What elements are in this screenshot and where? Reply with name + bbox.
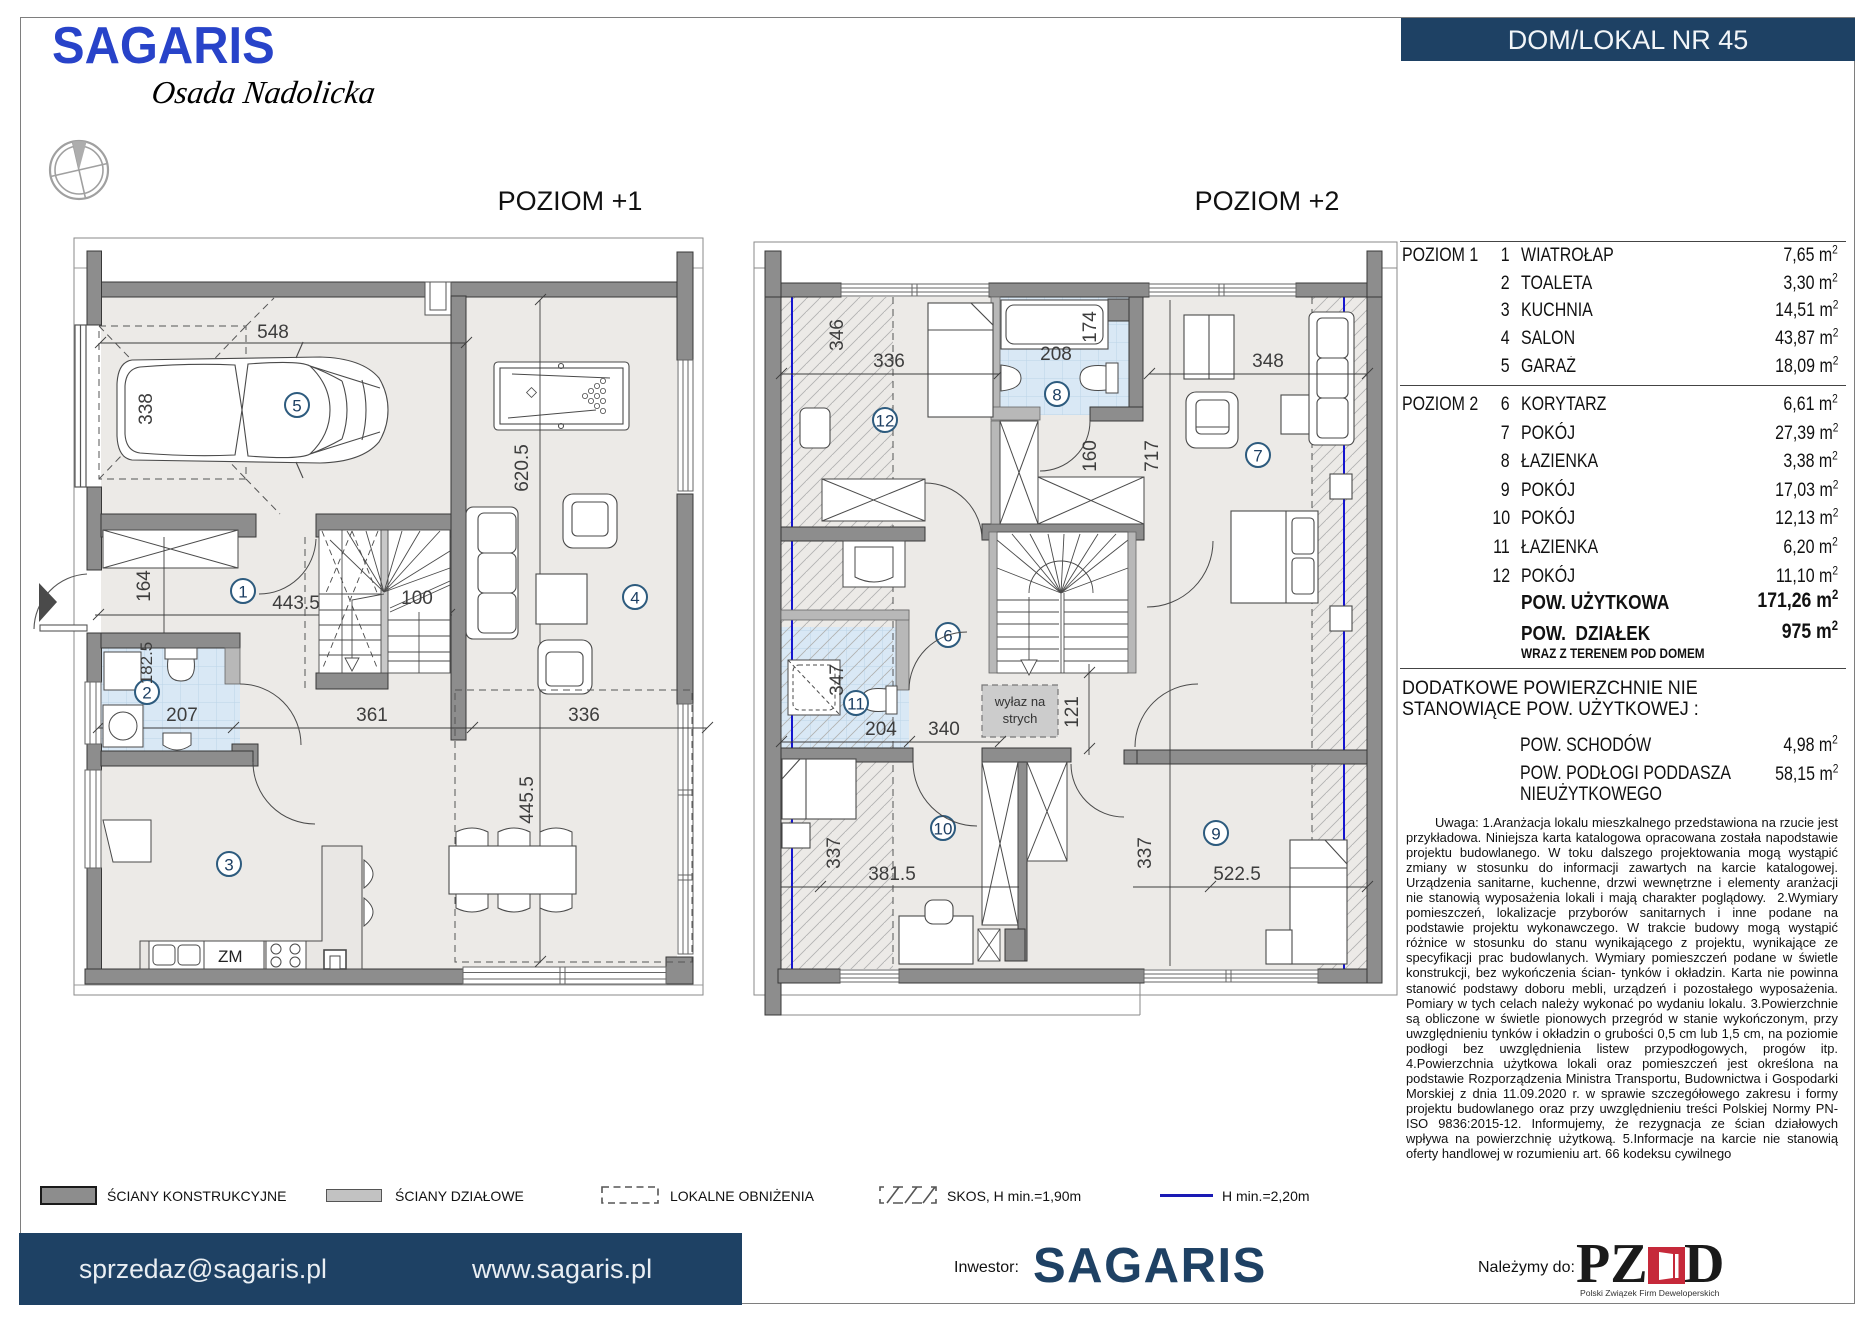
svg-text:7: 7 xyxy=(1253,447,1262,466)
svg-text:182.5: 182.5 xyxy=(137,642,156,685)
svg-text:100: 100 xyxy=(401,588,433,609)
svg-text:2: 2 xyxy=(142,684,151,703)
svg-text:11: 11 xyxy=(847,695,865,714)
svg-text:336: 336 xyxy=(873,351,905,372)
svg-text:1: 1 xyxy=(238,583,247,602)
svg-text:3: 3 xyxy=(224,856,233,875)
svg-text:12: 12 xyxy=(876,412,895,431)
svg-text:347: 347 xyxy=(827,664,848,696)
svg-text:164: 164 xyxy=(134,570,155,602)
svg-text:522.5: 522.5 xyxy=(1213,864,1261,885)
svg-text:wyłaz na: wyłaz na xyxy=(994,694,1046,709)
svg-text:D: D xyxy=(1684,1238,1724,1295)
svg-text:PZ: PZ xyxy=(1576,1238,1648,1295)
svg-text:204: 204 xyxy=(865,719,897,740)
svg-text:174: 174 xyxy=(1080,311,1101,343)
svg-text:strych: strych xyxy=(1003,711,1038,726)
svg-text:348: 348 xyxy=(1252,351,1284,372)
svg-text:340: 340 xyxy=(928,719,960,740)
svg-text:121: 121 xyxy=(1062,696,1083,728)
svg-text:207: 207 xyxy=(166,705,198,726)
svg-text:346: 346 xyxy=(827,319,848,351)
svg-text:361: 361 xyxy=(356,705,388,726)
svg-text:445.5: 445.5 xyxy=(517,776,538,824)
svg-text:ZM: ZM xyxy=(218,947,243,966)
svg-text:443.5: 443.5 xyxy=(272,593,320,614)
svg-text:8: 8 xyxy=(1052,386,1061,405)
svg-text:337: 337 xyxy=(824,837,845,869)
svg-text:10: 10 xyxy=(934,820,953,839)
svg-text:160: 160 xyxy=(1080,440,1101,472)
svg-text:208: 208 xyxy=(1040,344,1072,365)
svg-text:717: 717 xyxy=(1142,440,1163,472)
svg-text:4: 4 xyxy=(630,589,639,608)
svg-text:338: 338 xyxy=(136,393,157,425)
svg-text:381.5: 381.5 xyxy=(868,864,916,885)
svg-text:9: 9 xyxy=(1211,825,1220,844)
svg-text:337: 337 xyxy=(1135,837,1156,869)
svg-text:336: 336 xyxy=(568,705,600,726)
svg-text:5: 5 xyxy=(292,397,301,416)
svg-text:548: 548 xyxy=(257,322,289,343)
svg-text:620.5: 620.5 xyxy=(512,444,533,492)
svg-text:Polski Związek Firm Dewelopers: Polski Związek Firm Deweloperskich xyxy=(1580,1288,1720,1298)
